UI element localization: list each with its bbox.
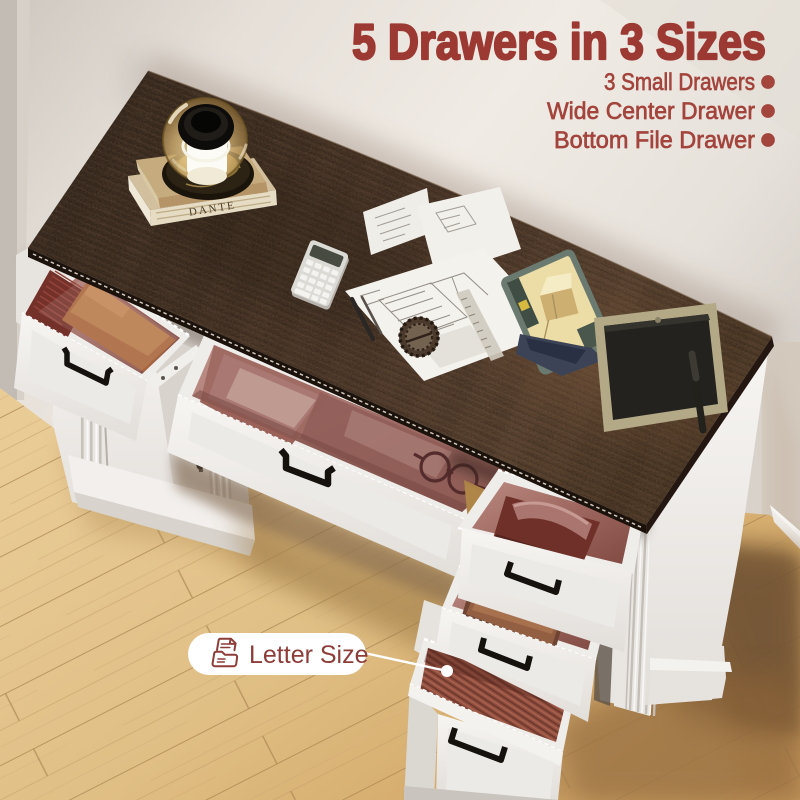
svg-text:Letter Size: Letter Size [249, 641, 369, 669]
svg-text:3 Small Drawers: 3 Small Drawers [604, 69, 755, 96]
svg-text:5 Drawers in 3 Sizes: 5 Drawers in 3 Sizes [352, 14, 766, 70]
svg-text:Wide Center Drawer: Wide Center Drawer [547, 98, 755, 125]
svg-text:Bottom File Drawer: Bottom File Drawer [554, 127, 755, 154]
